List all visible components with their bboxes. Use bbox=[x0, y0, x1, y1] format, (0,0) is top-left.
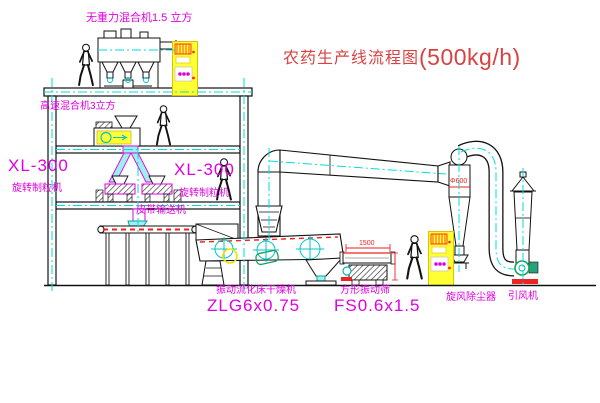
label-granulator-right-name: 旋转制粒机 bbox=[179, 189, 229, 199]
label-cyclone: 旋风除尘器 bbox=[446, 293, 496, 303]
dimension-sieve-length: 1500 bbox=[359, 240, 375, 247]
gravity-free-mixer bbox=[98, 29, 176, 88]
dimension-cyclone-diameter: Φ600 bbox=[450, 178, 467, 185]
diagram-canvas: 农药生产线流程图(500kg/h) 无重力混合机1.5 立方 高速混合机3立方 … bbox=[0, 0, 600, 403]
label-fan: 引风机 bbox=[508, 292, 538, 302]
label-granulator-left-model: XL-300 bbox=[8, 157, 69, 174]
control-cabinet-upper bbox=[173, 42, 198, 96]
title-text: 农药生产线流程图 bbox=[283, 50, 419, 67]
square-vibrating-sieve bbox=[340, 244, 398, 285]
label-sieve-model: FS0.6x1.5 bbox=[334, 297, 421, 314]
title-capacity: (500kg/h) bbox=[419, 44, 521, 70]
highspeed-mixer bbox=[94, 116, 140, 146]
induced-draft-fan bbox=[512, 261, 538, 284]
label-highspeed-mixer: 高速混合机3立方 bbox=[40, 102, 116, 112]
control-cabinet-lower bbox=[429, 232, 454, 286]
label-granulator-right-model: XL-300 bbox=[174, 161, 235, 178]
exhaust-duct bbox=[256, 150, 450, 236]
worker-figure bbox=[79, 44, 93, 85]
worker-figure bbox=[157, 106, 170, 145]
label-granulator-left-name: 旋转制粒机 bbox=[12, 184, 62, 194]
label-gravity-mixer: 无重力混合机1.5 立方 bbox=[86, 13, 192, 24]
label-sieve-name: 方形振动筛 bbox=[340, 286, 390, 296]
diagram-title: 农药生产线流程图(500kg/h) bbox=[283, 44, 521, 71]
label-dryer-name: 振动流化床干燥机 bbox=[216, 286, 296, 296]
label-dryer-model: ZLG6x0.75 bbox=[207, 297, 300, 314]
label-belt-conveyor: 皮带输送机 bbox=[136, 206, 186, 216]
worker-figure bbox=[407, 236, 422, 279]
belt-conveyor bbox=[98, 226, 198, 285]
